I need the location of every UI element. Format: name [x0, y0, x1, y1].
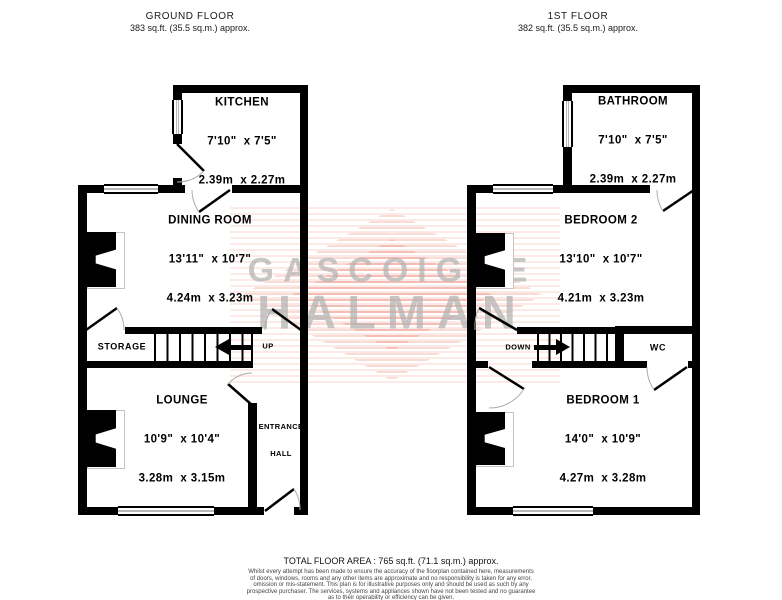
watermark-text-halman: HALMAN: [257, 285, 527, 340]
gf-kitchen-left-wall-a: [173, 85, 182, 100]
ff-landing-bottom-wall-a: [467, 361, 488, 368]
gf-left-wall: [78, 185, 87, 515]
ff-wc-door: [647, 367, 687, 390]
gf-dining-room-label: DINING ROOM 13'11" x 10'7" 4.24m x 3.23m: [167, 189, 254, 332]
ground-floor-header: GROUND FLOOR 383 sq.ft. (35.5 sq.m.) app…: [130, 11, 250, 33]
ff-bedroom1-label: BEDROOM 1 14'0" x 10'9" 4.27m x 3.28m: [560, 369, 647, 512]
disclaimer: Whilst every attempt has been made to en…: [0, 569, 782, 600]
gf-kitchen-left-wall-b: [173, 134, 182, 144]
gf-stairs-bottom-wall: [78, 361, 253, 368]
ff-landing-bottom-wall-c: [688, 361, 700, 368]
gf-storage-door: [86, 308, 124, 330]
first-floor-area: 382 sq.ft. (35.5 sq.m.) approx.: [518, 23, 638, 33]
first-floor-title: 1ST FLOOR: [518, 11, 638, 22]
ff-left-wall: [467, 185, 476, 515]
gf-kitchen-window: [172, 100, 183, 134]
ff-down-label: DOWN: [505, 343, 530, 352]
ff-right-wall: [692, 85, 700, 515]
ff-bathroom-window: [562, 101, 573, 147]
ff-down-arrow-icon: [556, 339, 570, 355]
ff-bathroom-left-wall-a: [563, 85, 572, 101]
gf-up-label: UP: [262, 342, 273, 351]
gf-up-arrow-shaft: [229, 345, 251, 350]
gf-bottom-wall-a: [78, 507, 120, 515]
ff-bedroom2-label: BEDROOM 2 13'10" x 10'7" 4.21m x 3.23m: [558, 189, 645, 332]
ff-wc-label: WC: [650, 342, 666, 355]
floorplan-canvas: GROUND FLOOR 383 sq.ft. (35.5 sq.m.) app…: [0, 0, 782, 600]
ff-landing-bottom-wall-b: [532, 361, 647, 368]
ff-bottom-wall-a: [467, 507, 515, 515]
first-floor-header: 1ST FLOOR 382 sq.ft. (35.5 sq.m.) approx…: [518, 11, 638, 33]
gf-dining-window: [104, 184, 158, 194]
gf-storage-label: STORAGE: [98, 341, 147, 354]
ground-floor-title: GROUND FLOOR: [130, 11, 250, 22]
gf-bottom-wall-c: [294, 507, 308, 515]
gf-up-arrow-icon: [215, 339, 229, 355]
total-floor-area: TOTAL FLOOR AREA : 765 sq.ft. (71.1 sq.m…: [0, 556, 782, 566]
gf-lounge-label: LOUNGE 10'9" x 10'4" 3.28m x 3.15m: [139, 369, 226, 512]
gf-entrance-hall-label: ENTRANCE HALL: [259, 404, 304, 476]
ff-down-arrow-shaft: [534, 345, 556, 350]
gf-entrance-hall-wall: [248, 403, 257, 515]
ff-bedroom2-window: [493, 184, 553, 194]
ground-floor-area: 383 sq.ft. (35.5 sq.m.) approx.: [130, 23, 250, 33]
